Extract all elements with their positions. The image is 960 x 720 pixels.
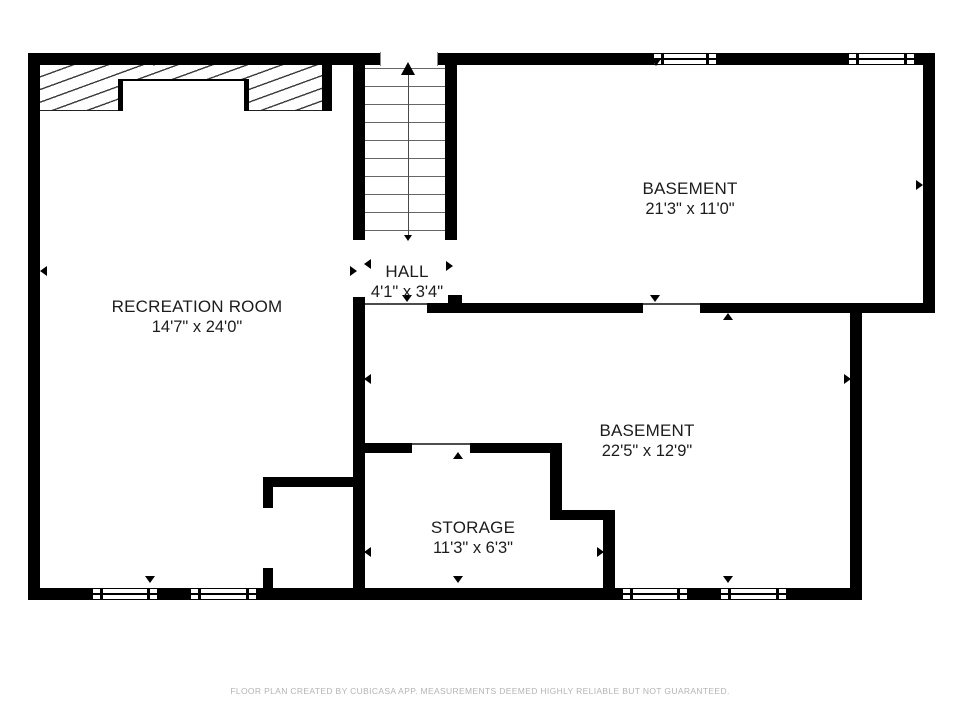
- wall-segment: [448, 295, 462, 305]
- room-dimensions: 21'3" x 11'0": [642, 199, 737, 220]
- direction-arrow-left: [40, 266, 47, 276]
- floorplan-canvas: FLOOR PLAN CREATED BY CUBICASA APP. MEAS…: [0, 0, 960, 720]
- passage-line: [365, 303, 427, 305]
- wall-segment: [550, 443, 562, 520]
- stair-tread: [365, 194, 445, 195]
- window: [720, 588, 787, 600]
- wall-segment: [923, 53, 935, 313]
- direction-arrow-right: [350, 266, 357, 276]
- window: [92, 588, 158, 600]
- direction-arrow-up: [723, 313, 733, 320]
- room-label-storage: STORAGE11'3" x 6'3": [431, 517, 515, 559]
- room-dimensions: 22'5" x 12'9": [599, 441, 694, 462]
- direction-arrow-down: [650, 295, 660, 302]
- window: [848, 53, 915, 65]
- room-name: BASEMENT: [599, 420, 694, 441]
- window: [653, 53, 717, 65]
- passage-line: [412, 443, 470, 445]
- stair-direction-line: [408, 74, 409, 236]
- room-label-recreation-room: RECREATION ROOM14'7" x 24'0": [112, 296, 283, 338]
- built-in-box: [118, 79, 249, 111]
- wall-opening: [263, 508, 273, 568]
- direction-arrow-right: [916, 180, 923, 190]
- direction-arrow-down: [723, 576, 733, 583]
- window-frame-cap: [728, 589, 731, 599]
- window: [622, 588, 688, 600]
- wall-segment: [263, 477, 363, 487]
- window-frame-cap: [776, 589, 779, 599]
- window-frame-cap: [100, 589, 103, 599]
- stair-tread: [365, 212, 445, 213]
- wall-segment: [445, 60, 457, 240]
- window-frame-cap: [630, 589, 633, 599]
- room-dimensions: 11'3" x 6'3": [431, 538, 515, 559]
- footer-disclaimer: FLOOR PLAN CREATED BY CUBICASA APP. MEAS…: [0, 686, 960, 696]
- stair-tread: [365, 122, 445, 123]
- direction-arrow-right: [844, 374, 851, 384]
- direction-arrow-left: [364, 547, 371, 557]
- stair-tread: [365, 104, 445, 105]
- passage-line: [643, 303, 700, 305]
- window-frame-cap: [706, 54, 709, 64]
- room-name: BASEMENT: [642, 178, 737, 199]
- room-name: STORAGE: [431, 517, 515, 538]
- direction-arrow-down: [453, 576, 463, 583]
- room-name: HALL: [371, 261, 443, 282]
- window-frame-cap: [661, 54, 664, 64]
- wall-segment: [850, 303, 862, 600]
- hatched-area-end-bar: [322, 65, 332, 111]
- window-frame-cap: [246, 589, 249, 599]
- window-frame-cap: [904, 54, 907, 64]
- wall-segment: [603, 510, 615, 600]
- direction-arrow-down: [145, 576, 155, 583]
- window-frame-cap: [198, 589, 201, 599]
- window-frame-cap: [147, 589, 150, 599]
- direction-arrow-right: [446, 261, 453, 271]
- wall-segment: [28, 53, 935, 65]
- window: [190, 588, 257, 600]
- stair-tread: [365, 158, 445, 159]
- stair-tread: [365, 230, 445, 231]
- room-dimensions: 14'7" x 24'0": [112, 317, 283, 338]
- room-label-hall: HALL4'1" x 3'4": [371, 261, 443, 303]
- direction-arrow-left: [364, 374, 371, 384]
- stair-tread: [365, 86, 445, 87]
- room-dimensions: 4'1" x 3'4": [371, 282, 443, 303]
- stair-tread: [365, 176, 445, 177]
- direction-arrow-up: [401, 62, 415, 75]
- wall-segment: [28, 53, 40, 600]
- room-name: RECREATION ROOM: [112, 296, 283, 317]
- direction-arrow-down: [149, 59, 159, 66]
- wall-segment: [353, 60, 365, 240]
- room-label-basement-lower: BASEMENT22'5" x 12'9": [599, 420, 694, 462]
- direction-arrow-down: [651, 59, 661, 66]
- direction-arrow-up: [453, 452, 463, 459]
- window-frame-cap: [856, 54, 859, 64]
- direction-arrow-right: [597, 547, 604, 557]
- window-frame-cap: [677, 589, 680, 599]
- room-label-basement-upper: BASEMENT21'3" x 11'0": [642, 178, 737, 220]
- stair-tread: [365, 140, 445, 141]
- direction-arrow-down: [404, 235, 412, 241]
